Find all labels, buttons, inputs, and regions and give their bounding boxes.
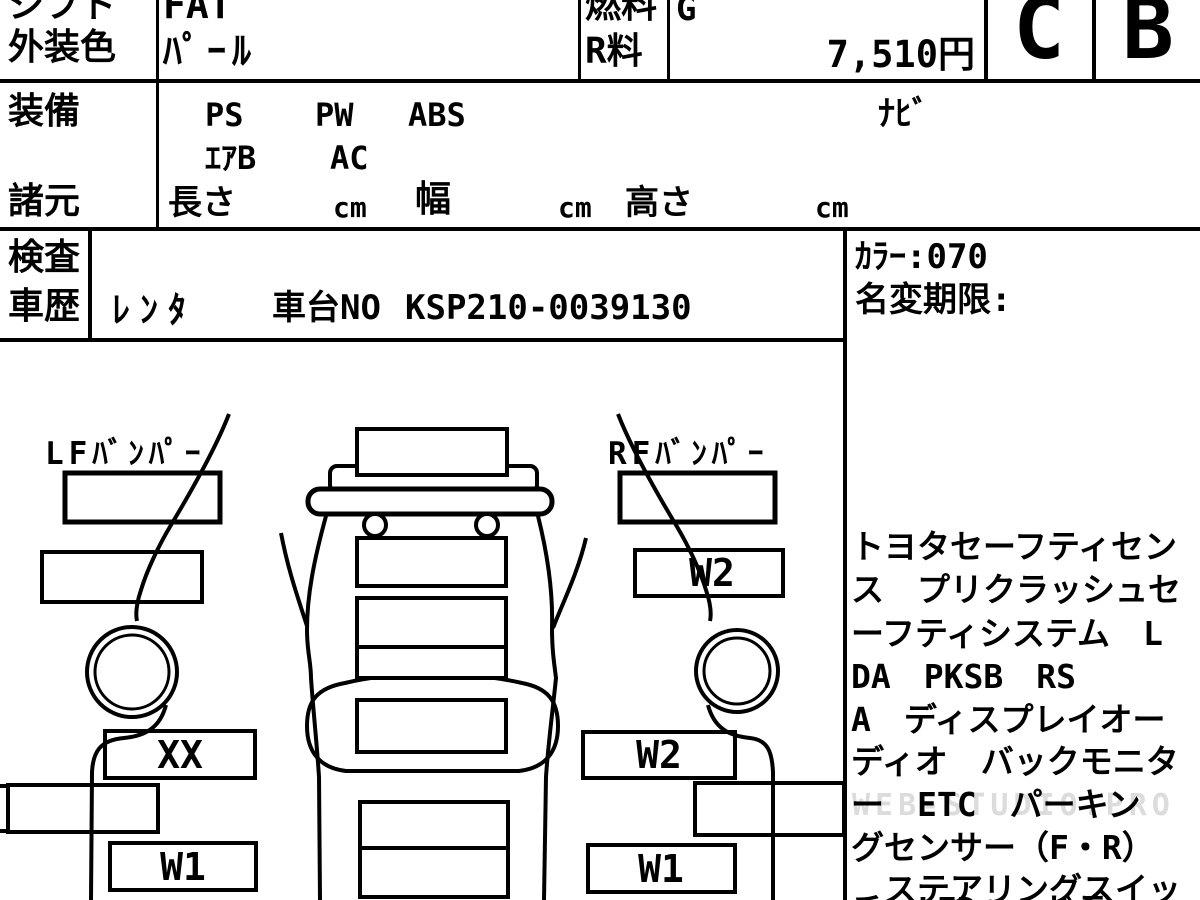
- history-value: ﾚﾝﾀ: [112, 293, 196, 329]
- equipment-abs: ABS: [408, 99, 466, 131]
- damage-box-hood-2: [357, 598, 506, 647]
- mark-left-door: XX: [157, 733, 203, 777]
- left-apillar-line: [281, 533, 307, 626]
- damage-box-hood-3: [357, 647, 506, 678]
- equipment-ac: AC: [330, 142, 369, 174]
- exterior-color-label: 外装色: [8, 30, 116, 66]
- history-label: 車歴: [8, 289, 80, 325]
- rename-deadline: 名変期限:: [855, 283, 1011, 317]
- vehicle-damage-diagram: LFﾊﾞﾝﾊﾟｰ RFﾊﾞﾝﾊﾟｰ XX W1 W2 W2 W1: [0, 400, 845, 900]
- chassis-no-label: 車台NO: [272, 291, 381, 325]
- fuel-value: G: [676, 0, 696, 26]
- right-wheel-icon: [696, 630, 778, 712]
- left-foglamp-icon: [364, 514, 386, 536]
- rf-bumper-label: RFﾊﾞﾝﾊﾟｰ: [608, 436, 768, 472]
- damage-box-left-fender: [42, 552, 202, 602]
- note-line-clipped: チ LEDヘッドラ: [851, 893, 1109, 900]
- right-foglamp-icon: [476, 514, 498, 536]
- equipment-airbag: ｴｱB: [205, 142, 256, 174]
- grade-interior: B: [1096, 0, 1200, 72]
- r-fee-value: 7,510円: [670, 36, 975, 73]
- note-line: DA PKSB RS: [851, 660, 1076, 693]
- damage-box-rf-bumper: [620, 473, 775, 522]
- note-line: ス プリクラッシュセ: [851, 573, 1181, 606]
- lf-bumper-label: LFﾊﾞﾝﾊﾟｰ: [45, 436, 205, 472]
- fuel-label: 燃料: [585, 0, 657, 24]
- height-label: 高さ: [625, 186, 693, 220]
- rule-label-col: [156, 0, 159, 231]
- exterior-color-value: ﾊﾟｰﾙ: [163, 32, 257, 70]
- equipment-pw: PW: [315, 99, 354, 131]
- inspection-label: 検査: [8, 240, 80, 276]
- equipment-ps: PS: [205, 99, 244, 131]
- width-unit: cm: [558, 194, 592, 222]
- note-line: A ディスプレイオー: [851, 703, 1166, 736]
- right-apillar-line: [553, 538, 586, 628]
- width-label: 幅: [415, 182, 451, 218]
- damage-box-roof-1: [360, 802, 508, 848]
- left-wheel-icon: [87, 627, 177, 717]
- damage-box-windshield: [357, 700, 506, 752]
- r-fee-label: R料: [585, 34, 643, 70]
- rule-fuel-left: [578, 0, 581, 79]
- mark-right-fender: W2: [689, 551, 735, 595]
- grade-exterior: C: [985, 0, 1093, 72]
- damage-box-right-side: [695, 783, 844, 835]
- note-line: トヨタセーフティセン: [851, 530, 1177, 563]
- damage-box-front-top: [357, 429, 507, 475]
- length-label: 長さ: [168, 186, 236, 220]
- shift-value: FAT: [163, 0, 232, 24]
- length-unit: cm: [333, 194, 367, 222]
- mark-right-rear: W1: [638, 847, 684, 891]
- note-line: グセンサー（F・R）: [851, 831, 1155, 864]
- rule-top-band-bottom: [0, 79, 1200, 83]
- mark-right-door: W2: [636, 733, 682, 777]
- note-line: ディオ バックモニタ: [851, 745, 1179, 778]
- damage-box-left-side: [8, 785, 158, 832]
- front-bumper-bar: [308, 489, 552, 514]
- rule-history-bottom: [0, 338, 845, 342]
- specs-label: 諸元: [8, 184, 80, 220]
- note-line: ー ETC パーキン: [851, 788, 1141, 821]
- height-unit: cm: [815, 194, 849, 222]
- rule-specs-bottom: [0, 227, 1200, 231]
- equipment-notes-panel: トヨタセーフティセン ス プリクラッシュセ ーフティシステム L DA PKSB…: [851, 528, 1200, 900]
- mark-left-rear: W1: [160, 845, 206, 889]
- rule-inspection-col: [88, 227, 92, 342]
- color-code: ｶﾗｰ:070: [855, 240, 988, 274]
- vehicle-auction-sheet: シフト FAT 外装色 ﾊﾟｰﾙ 燃料 G R料 7,510円 C B 装備 P…: [0, 0, 1200, 900]
- damage-box-hood-1: [357, 538, 506, 586]
- shift-label: シフト: [8, 0, 116, 24]
- damage-box-roof-2: [360, 848, 508, 897]
- chassis-no-value: KSP210-0039130: [405, 291, 692, 325]
- equipment-navi: ﾅﾋﾞ: [878, 97, 929, 131]
- note-line: ーフティシステム L: [851, 617, 1163, 650]
- equipment-label: 装備: [8, 94, 80, 130]
